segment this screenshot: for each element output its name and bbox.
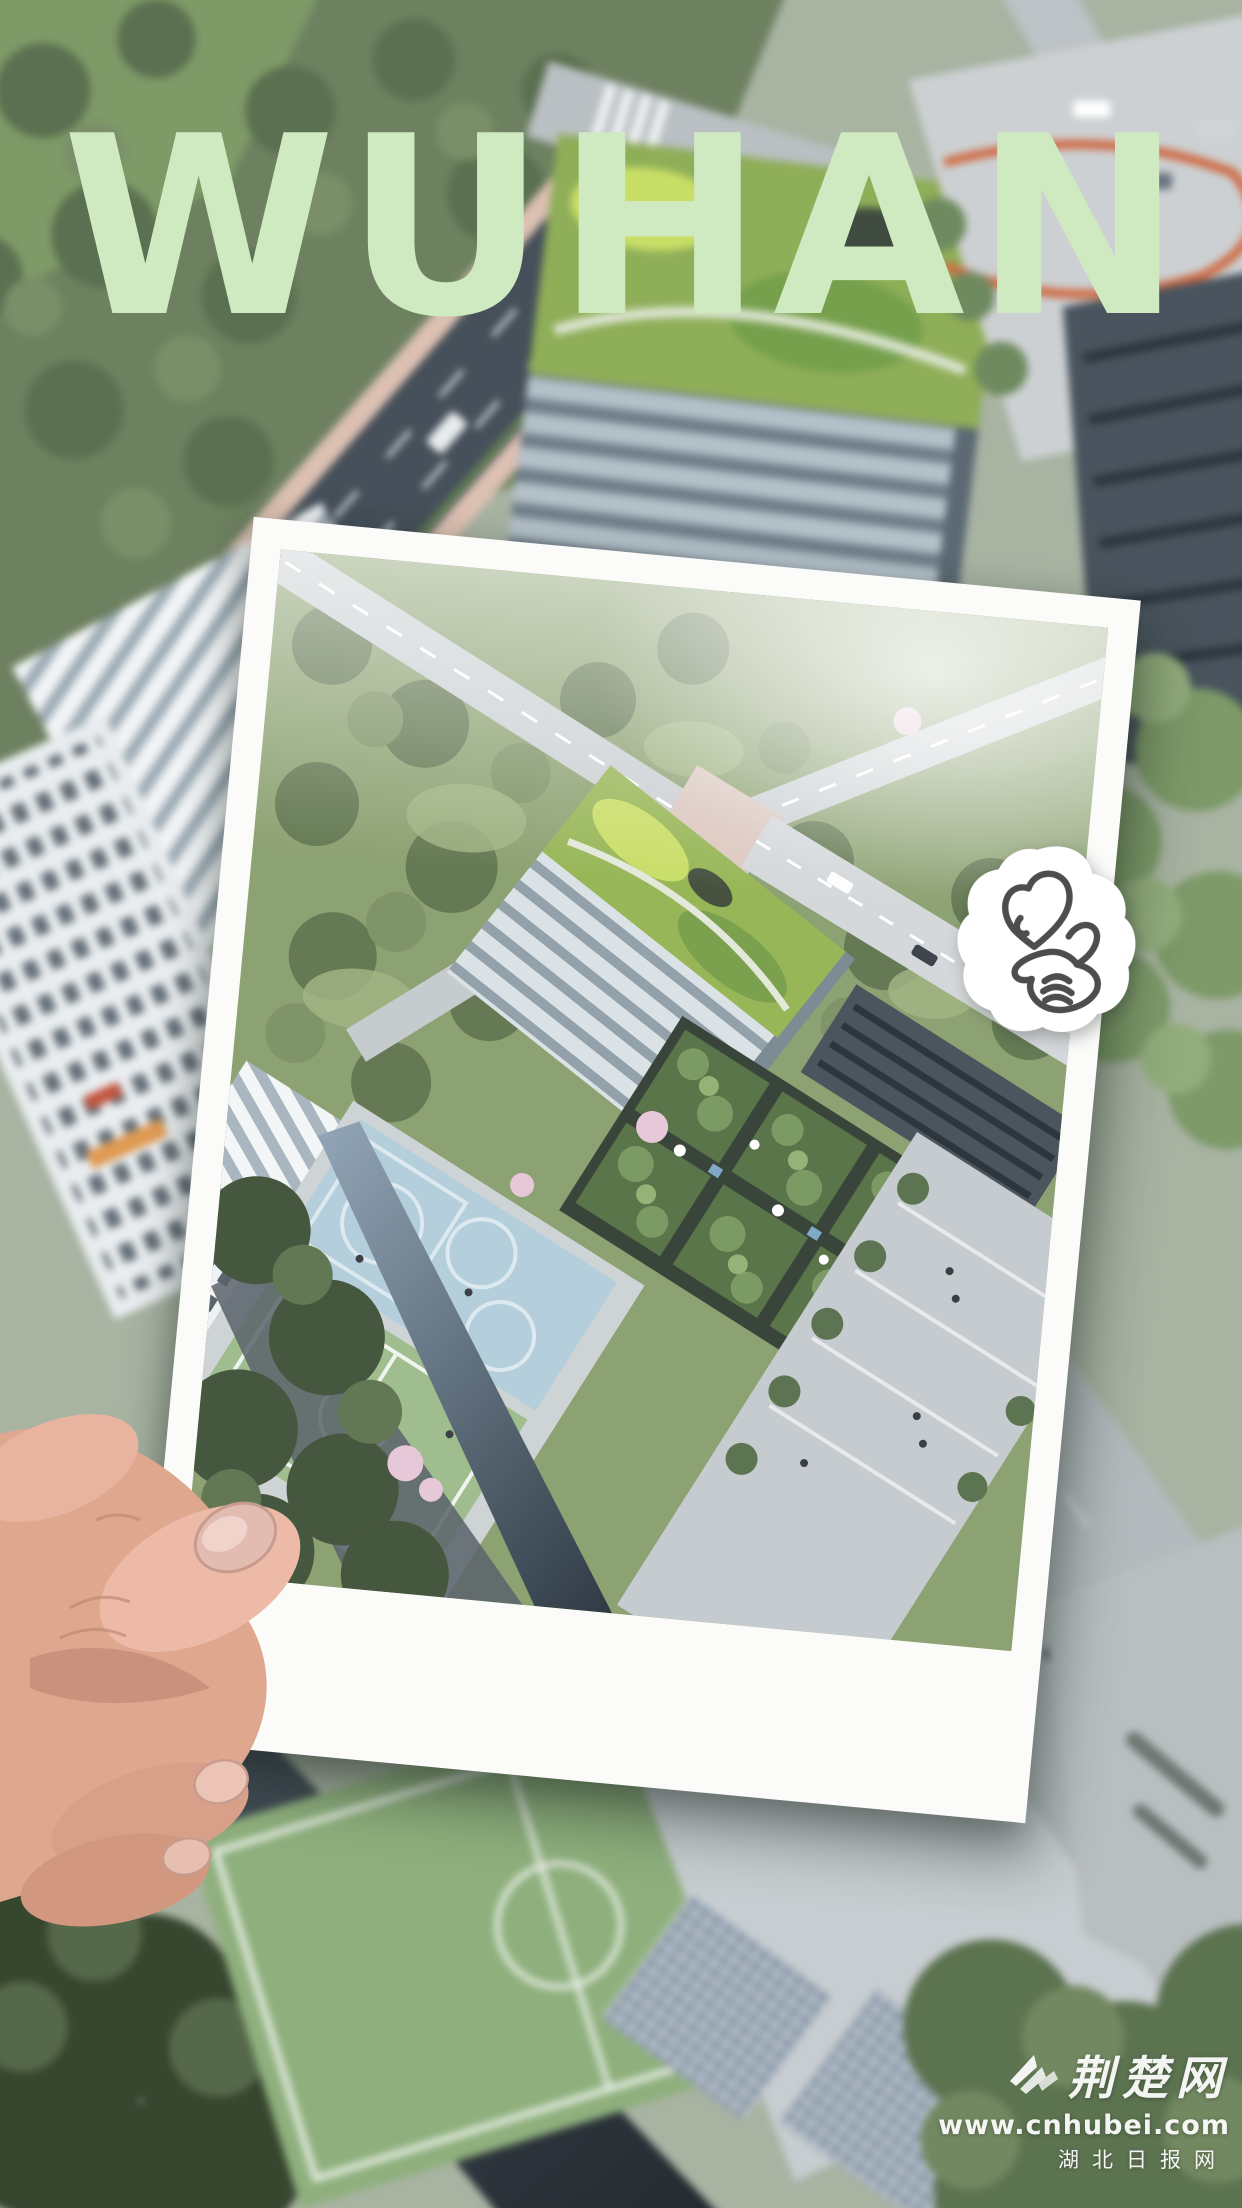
title-letter: A (773, 104, 965, 352)
watermark-site-name: 荆楚网 (1068, 2042, 1230, 2108)
poster: W U H A N (0, 0, 1242, 2208)
watermark-url: www.cnhubei.com (938, 2110, 1230, 2141)
title-letter: H (556, 104, 764, 352)
watermark-org-name: 湖北日报网 (938, 2144, 1228, 2174)
poster-title: W U H A N (62, 104, 1182, 352)
title-letter: W (62, 104, 336, 352)
watermark: 荆楚网 www.cnhubei.com 湖北日报网 (938, 2042, 1230, 2174)
hand-holding-polaroid (0, 1408, 350, 1938)
jingchu-wing-logo-icon (1008, 2053, 1060, 2097)
title-letter: U (345, 104, 546, 352)
title-letter: N (974, 104, 1182, 352)
heart-thumbs-up-sticker (949, 841, 1142, 1039)
